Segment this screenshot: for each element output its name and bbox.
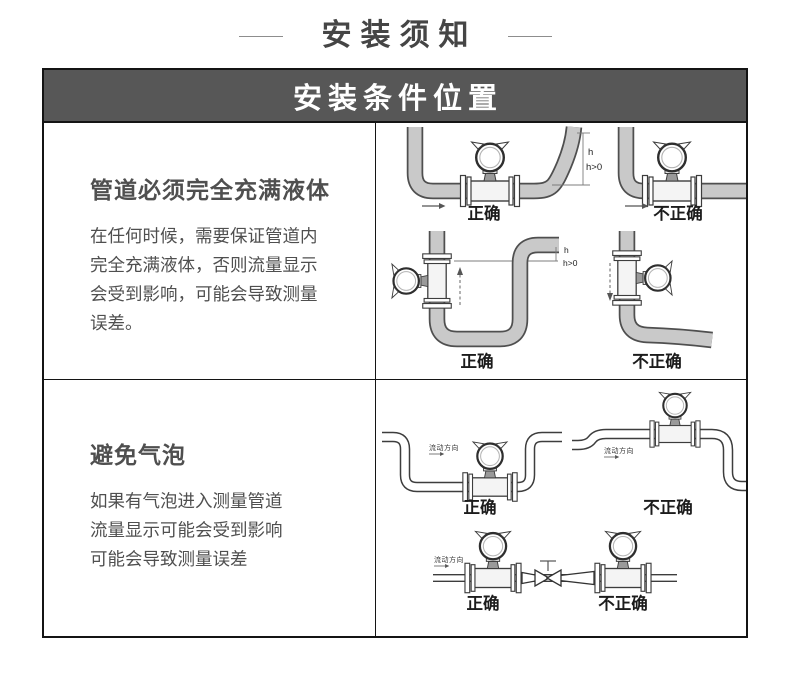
flow-arrow-icon: [434, 564, 449, 568]
title-divider-left: [239, 36, 283, 37]
body-line: 在任何时候，需要保证管道内: [90, 222, 357, 251]
diagram-label-incorrect: 不正确: [653, 203, 703, 223]
section-row-full-pipe: 管道必须完全充满液体 在任何时候，需要保证管道内 完全充满液体，否则流量显示 会…: [44, 123, 746, 379]
flowmeter-icon: [613, 251, 672, 305]
body-line: 误差。: [90, 309, 357, 338]
flowmeter-icon: [595, 531, 651, 592]
installation-notice-page: 安装须知 安装条件位置 管道必须完全充满液体 在任何时候，需要保证管道内 完全充…: [0, 0, 790, 685]
pipe-reducer: [560, 572, 594, 585]
diagram-label-incorrect: 不正确: [643, 497, 693, 517]
flowmeter-icon: [463, 442, 517, 501]
diagram-label-correct: 正确: [461, 351, 494, 371]
valve-icon: [547, 570, 561, 586]
flow-direction-label: 流动方向: [429, 443, 459, 452]
dimension-label-h: h: [564, 245, 569, 255]
flowmeter-icon: [461, 142, 520, 207]
section-text-full-pipe: 管道必须完全充满液体 在任何时候，需要保证管道内 完全充满液体，否则流量显示 会…: [44, 123, 376, 379]
dimension-label-h-gt-0: h>0: [563, 258, 578, 268]
diagram-cell-avoid-bubbles: 流动方向 正确 流动方向 不正确: [376, 380, 746, 636]
flow-direction-label: 流动方向: [604, 446, 634, 455]
title-divider-right: [508, 36, 552, 37]
page-title-row: 安装须知: [0, 0, 790, 68]
panel-header: 安装条件位置: [44, 70, 746, 123]
dimension-label-h: h: [588, 147, 593, 158]
diagram-label-incorrect: 不正确: [632, 351, 682, 371]
flow-arrow-icon: [422, 203, 446, 209]
body-line: 如果有气泡进入测量管道: [90, 487, 357, 516]
body-line: 完全充满液体，否则流量显示: [90, 251, 357, 280]
section-row-avoid-bubbles: 避免气泡 如果有气泡进入测量管道 流量显示可能会受到影响 可能会导致测量误差 流…: [44, 379, 746, 636]
body-line: 流量显示可能会受到影响: [90, 516, 357, 545]
dimension-label-h-gt-0: h>0: [586, 162, 602, 173]
flowmeter-icon: [392, 254, 451, 308]
section-body: 在任何时候，需要保证管道内 完全充满液体，否则流量显示 会受到影响，可能会导致测…: [90, 222, 357, 338]
diagram-label-correct: 正确: [468, 203, 501, 223]
flowmeter-icon: [643, 142, 702, 207]
section-heading: 管道必须完全充满液体: [90, 171, 357, 205]
installation-diagram-avoid-bubbles: 流动方向 正确 流动方向 不正确: [376, 380, 746, 636]
diagram-label-incorrect: 不正确: [598, 593, 648, 613]
diagram-label-correct: 正确: [467, 593, 500, 613]
diagram-cell-full-pipe: h h>0 正确 不正确 h h: [376, 123, 746, 379]
section-body: 如果有气泡进入测量管道 流量显示可能会受到影响 可能会导致测量误差: [90, 487, 357, 574]
flowmeter-icon: [465, 531, 521, 592]
page-title: 安装须知: [313, 18, 478, 54]
diagram-label-correct: 正确: [464, 497, 497, 517]
install-conditions-panel: 安装条件位置 管道必须完全充满液体 在任何时候，需要保证管道内 完全充满液体，否…: [42, 68, 748, 638]
installation-diagram-full-pipe: h h>0 正确 不正确 h h: [376, 123, 746, 379]
body-line: 会受到影响，可能会导致测量: [90, 280, 357, 309]
section-heading: 避免气泡: [90, 436, 357, 470]
flow-arrow-icon: [604, 455, 619, 459]
flowmeter-icon: [650, 392, 700, 447]
flow-arrow-icon: [429, 452, 444, 456]
flow-direction-label: 流动方向: [434, 555, 464, 564]
section-text-avoid-bubbles: 避免气泡 如果有气泡进入测量管道 流量显示可能会受到影响 可能会导致测量误差: [44, 380, 376, 636]
body-line: 可能会导致测量误差: [90, 545, 357, 574]
